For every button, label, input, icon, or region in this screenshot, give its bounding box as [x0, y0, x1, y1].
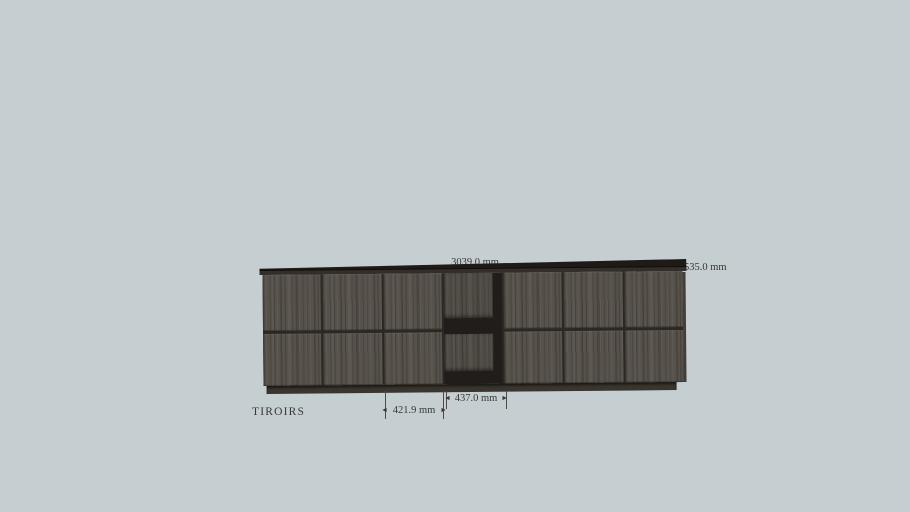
drawer-front[interactable] — [564, 331, 623, 384]
cabinet-right-side-face — [682, 272, 686, 382]
drawer-column[interactable] — [262, 274, 323, 386]
dimension-drawer-width[interactable]: ◄ 421.9 mm ► — [381, 405, 447, 416]
dimension-depth-value: 535.0 mm — [684, 262, 727, 273]
drawer-front[interactable] — [625, 330, 684, 383]
drawer-front[interactable] — [383, 273, 442, 333]
niche-drawer-box[interactable] — [443, 273, 493, 318]
dimension-arrow-right-icon: ► — [440, 405, 447, 416]
cabinet-front[interactable] — [262, 271, 683, 386]
dimension-drawer-width-value: 421.9 mm — [393, 405, 436, 416]
drawer-front[interactable] — [323, 274, 382, 334]
dimension-arrow-left-icon: ◄ — [444, 393, 451, 404]
drawer-column[interactable] — [323, 274, 384, 386]
dimension-niche-width[interactable]: ◄ 437.0 mm ► — [444, 393, 508, 404]
dimension-arrow-right-icon: ► — [501, 393, 508, 404]
drawer-column[interactable] — [383, 273, 444, 385]
drawer-column[interactable] — [564, 272, 625, 384]
dimension-arrow-left-icon: ◄ — [381, 405, 388, 416]
drawer-front[interactable] — [323, 333, 382, 386]
niche-drawer-box[interactable] — [444, 334, 494, 371]
drawer-column[interactable] — [504, 272, 565, 384]
drawer-front[interactable] — [262, 274, 321, 334]
open-niche-column[interactable] — [443, 273, 504, 385]
drawer-column[interactable] — [624, 271, 683, 383]
dimension-niche-width-value: 437.0 mm — [455, 393, 498, 404]
cabinet-model[interactable] — [262, 259, 683, 394]
product-label[interactable]: TIROIRS — [252, 406, 305, 418]
model-viewport[interactable]: 3039.0 mm ◄ 535.0 mm ◄ 437.0 mm ► ◄ 421.… — [0, 0, 910, 512]
drawer-front[interactable] — [564, 272, 623, 332]
drawer-front[interactable] — [624, 271, 683, 331]
drawer-front[interactable] — [263, 333, 322, 386]
drawer-front[interactable] — [504, 272, 563, 332]
drawer-front[interactable] — [384, 332, 443, 385]
drawer-front[interactable] — [504, 331, 563, 384]
